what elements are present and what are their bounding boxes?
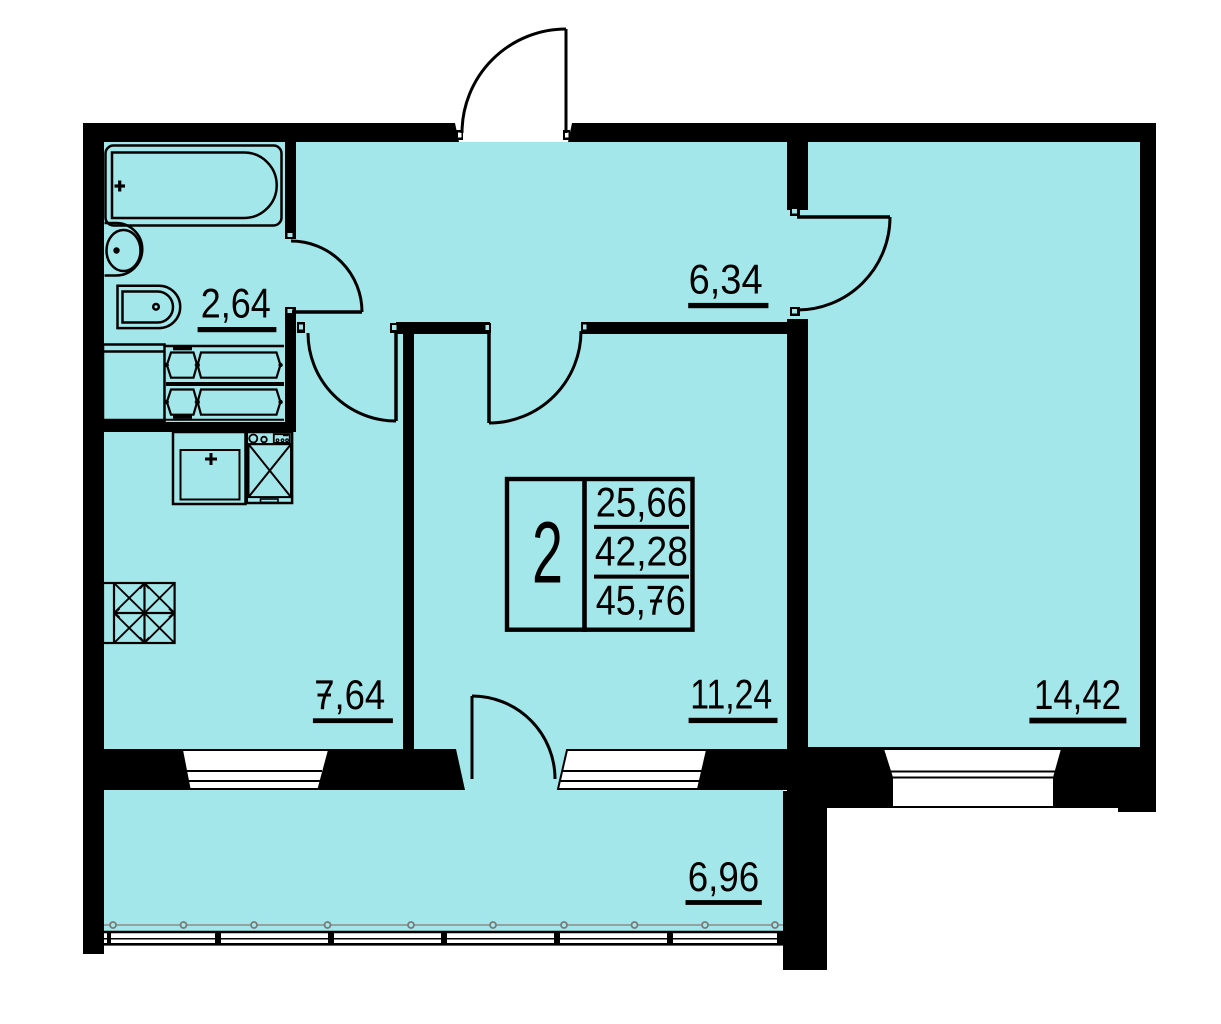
svg-text:45,76: 45,76 <box>596 576 686 623</box>
svg-text:2,64: 2,64 <box>201 279 271 326</box>
svg-text:2: 2 <box>532 505 563 602</box>
svg-text:6,96: 6,96 <box>688 853 760 900</box>
svg-text:14,42: 14,42 <box>1034 671 1121 718</box>
svg-text:11,24: 11,24 <box>690 671 772 718</box>
svg-text:25,66: 25,66 <box>596 479 687 526</box>
svg-text:6,34: 6,34 <box>689 256 763 303</box>
svg-text:42,28: 42,28 <box>595 527 688 574</box>
